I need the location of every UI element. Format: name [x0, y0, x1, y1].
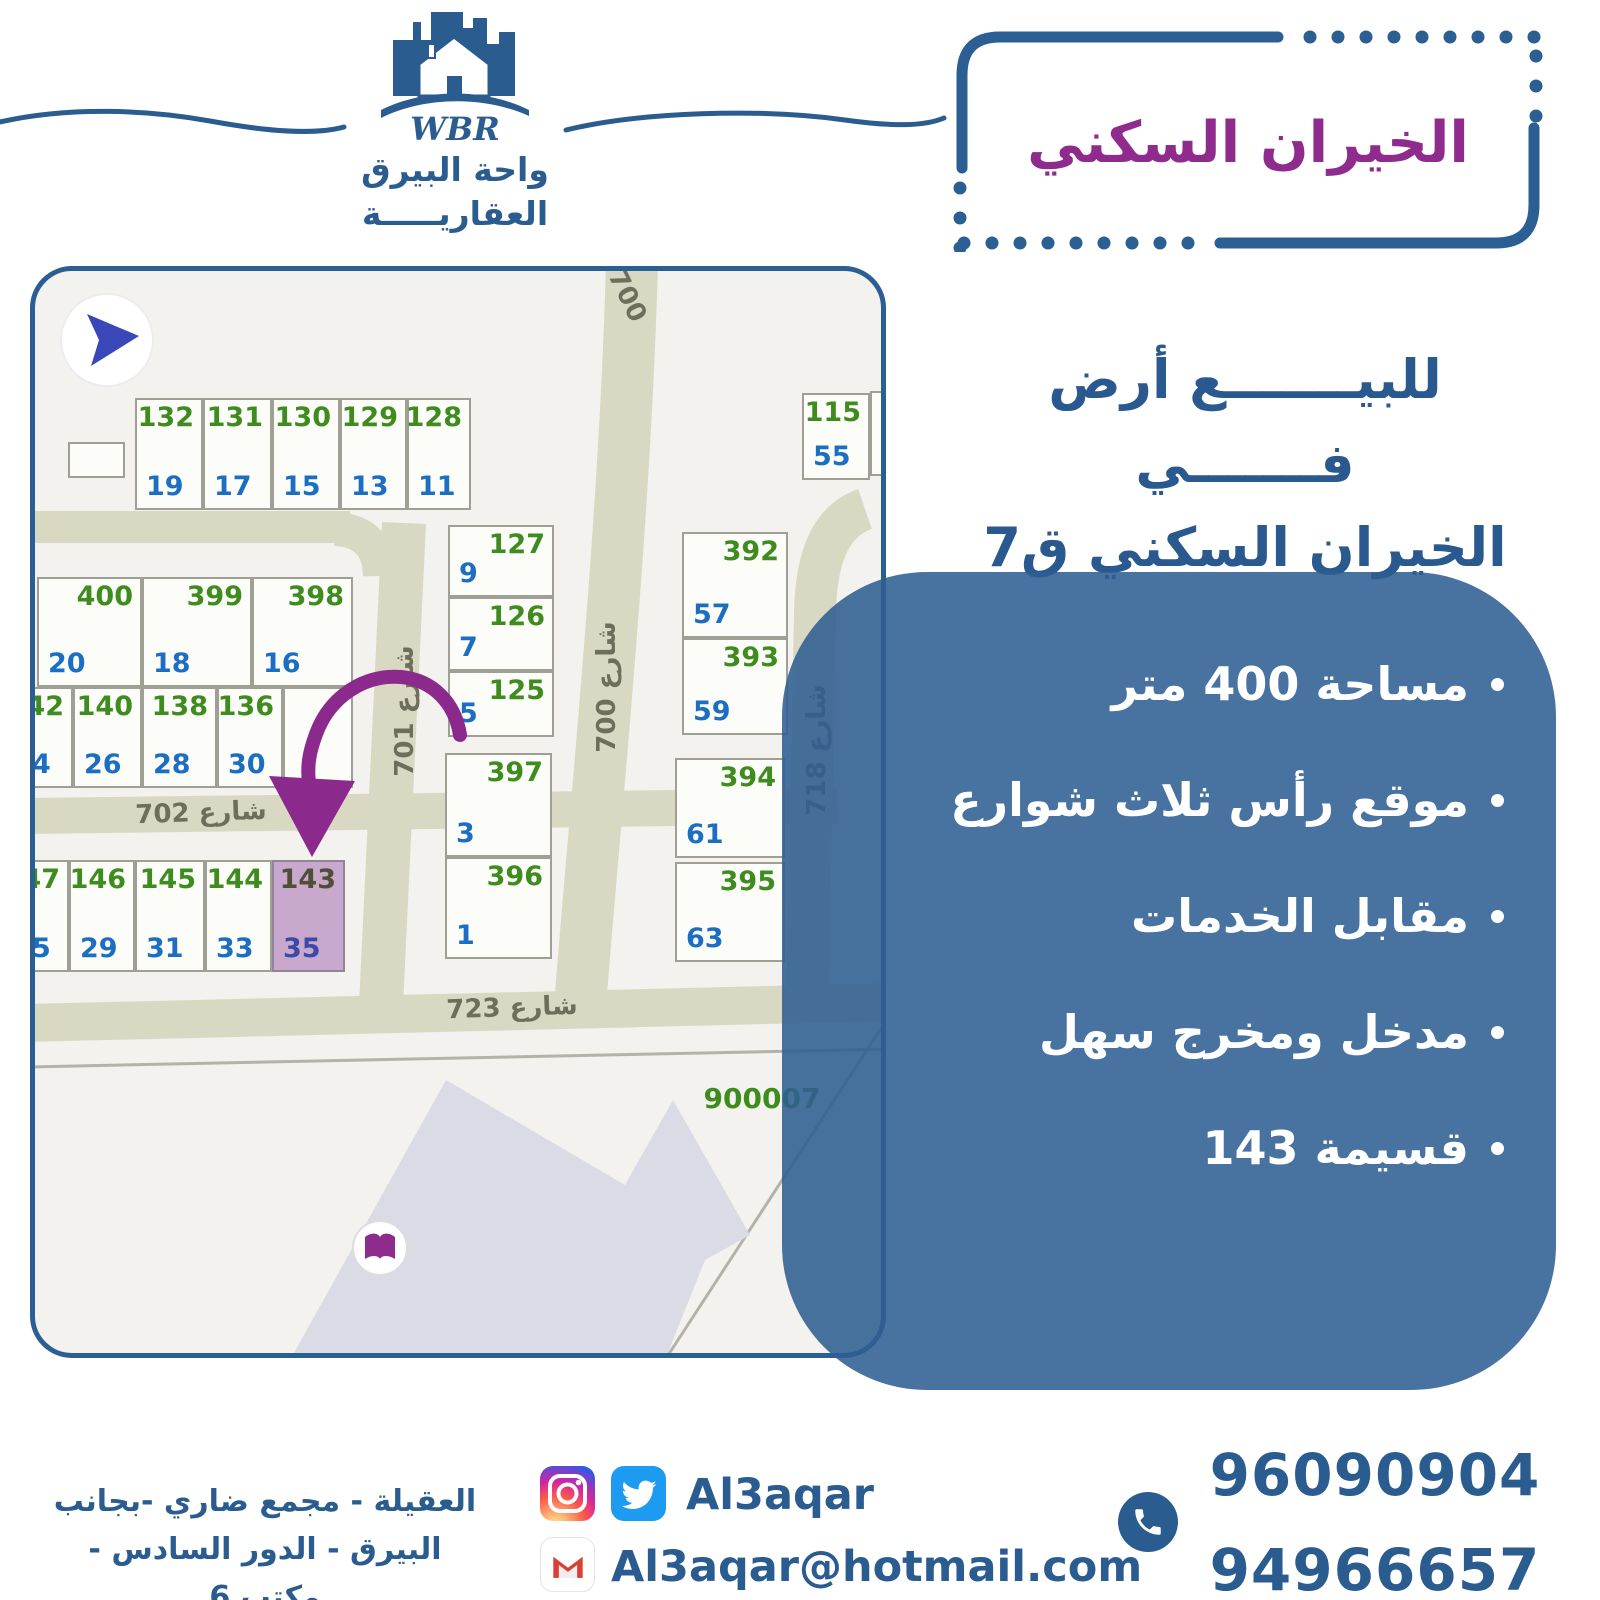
poster: WBR واحة البيرق العقاريـــــة الخيران ال…: [0, 0, 1600, 1600]
plot-number: 393: [723, 642, 779, 673]
map-plot: 13219: [135, 398, 203, 510]
map-plot: 39461: [675, 758, 785, 858]
plot-secondary-number: 33: [216, 933, 254, 964]
gmail-icon[interactable]: [540, 1537, 595, 1592]
plot-secondary-number: 20: [48, 648, 86, 679]
plot-number: 397: [487, 757, 543, 788]
plot-secondary-number: 5: [459, 698, 478, 729]
map-plot: 39257: [682, 532, 788, 638]
feature-bullet: مقابل الخدمات: [822, 890, 1504, 942]
map-plot: [283, 687, 353, 788]
building-footprint: [290, 1080, 750, 1358]
feature-bullet: مساحة 400 متر: [822, 658, 1504, 710]
map-plot: 40020: [37, 577, 142, 687]
feature-text: مقابل الخدمات: [1131, 890, 1469, 942]
map-plot: 13015: [272, 398, 340, 510]
map-plot: 3973: [445, 753, 552, 857]
bullet-dot-icon: [1491, 678, 1504, 691]
plot-secondary-number: 61: [686, 819, 724, 850]
twitter-icon[interactable]: [611, 1466, 666, 1521]
plot-number: 144: [207, 864, 263, 895]
plot-secondary-number: 3: [456, 818, 475, 849]
feature-text: مدخل ومخرج سهل: [1039, 1006, 1469, 1058]
phone-icon: [1118, 1492, 1178, 1552]
social-handle[interactable]: Al3aqar: [686, 1470, 874, 1520]
compass-badge: [59, 292, 155, 388]
map-plot: 14629: [69, 860, 135, 972]
plot-number: 394: [720, 762, 776, 793]
map-plot: 13828: [142, 687, 217, 788]
map-plot: 11555: [802, 393, 870, 480]
book-icon: [365, 1234, 395, 1259]
map-plot: 14433: [205, 860, 272, 972]
plot-number: 400: [77, 581, 133, 612]
feature-bullet: موقع رأس ثلاث شوارع: [822, 774, 1504, 826]
plot-number: 146: [70, 864, 126, 895]
map-plot: 1424: [30, 687, 73, 788]
title-box: الخيران السكني: [948, 28, 1548, 252]
plot-number: 127: [489, 529, 545, 560]
plot-number: 138: [152, 691, 208, 722]
feature-text: موقع رأس ثلاث شوارع: [950, 774, 1469, 826]
plot-secondary-number: 57: [693, 599, 731, 630]
plot-number: 395: [720, 866, 776, 897]
plot-number: 132: [138, 402, 194, 433]
plot-secondary-number: 5: [32, 933, 51, 964]
plot-secondary-number: 18: [153, 648, 191, 679]
map-plot: 1279: [448, 525, 554, 597]
bullet-dot-icon: [1491, 1026, 1504, 1039]
street-name-label: شارع 702: [121, 795, 282, 831]
map-plot: 39359: [682, 638, 788, 735]
plot-number: 392: [723, 536, 779, 567]
map-plot: 12811: [407, 398, 471, 510]
plot-secondary-number: 1: [456, 920, 475, 951]
plot-secondary-number: 59: [693, 696, 731, 727]
map-plot: 39918: [142, 577, 252, 687]
plots-map: 1321913117130151291312811400203991839816…: [30, 266, 886, 1358]
street-name-label: شارع 723: [432, 990, 593, 1026]
plot-secondary-number: 28: [153, 749, 191, 780]
map-plot: 3961: [445, 857, 552, 959]
map-plot: 39563: [675, 862, 785, 962]
feature-bullet: مدخل ومخرج سهل: [822, 1006, 1504, 1058]
address-line2: البيرق - الدور السادس - مكتب 6: [50, 1526, 480, 1600]
plot-secondary-number: 26: [84, 749, 122, 780]
phone-number-2[interactable]: 94966657: [1190, 1523, 1560, 1600]
plot-number: 396: [487, 861, 543, 892]
plot-number: 131: [207, 402, 263, 433]
bullet-dot-icon: [1491, 794, 1504, 807]
plot-secondary-number: 31: [146, 933, 184, 964]
instagram-icon[interactable]: [540, 1466, 595, 1521]
plot-number: 115: [805, 397, 861, 428]
plot-number: 140: [77, 691, 133, 722]
street-name-label: شارع 701: [390, 636, 420, 786]
plot-secondary-number: 11: [418, 471, 456, 502]
feature-bullet: قسيمة 143: [822, 1122, 1504, 1174]
plot-number: 126: [489, 601, 545, 632]
feature-text: مساحة 400 متر: [1111, 658, 1469, 710]
map-plot: 13630: [217, 687, 283, 788]
plot-secondary-number: 55: [813, 441, 851, 472]
plot-number: 47: [30, 864, 60, 895]
plot-secondary-number: 19: [146, 471, 184, 502]
brand-logo-block: WBR واحة البيرق العقاريـــــة: [330, 4, 580, 236]
plot-secondary-number: 30: [228, 749, 266, 780]
features-panel: مساحة 400 مترموقع رأس ثلاث شوارعمقابل ال…: [782, 572, 1556, 1390]
wbr-text: WBR: [410, 110, 500, 144]
map-plot: 1255: [448, 671, 554, 737]
thin-road: [35, 1049, 886, 1067]
plot-secondary-number: 13: [351, 471, 389, 502]
email-address[interactable]: Al3aqar@hotmail.com: [611, 1542, 1142, 1592]
plot-secondary-number: 16: [263, 648, 301, 679]
bullet-dot-icon: [1491, 910, 1504, 923]
plot-secondary-number: 63: [686, 923, 724, 954]
brand-name-line2: العقاريـــــة: [330, 192, 580, 236]
brand-name-line1: واحة البيرق: [330, 148, 580, 192]
plot-secondary-number: 29: [80, 933, 118, 964]
plot-number: 142: [30, 691, 64, 722]
map-plot: [870, 391, 886, 476]
twitter-bird-icon: [619, 1474, 659, 1514]
plot-number: 143: [280, 864, 336, 895]
plot-number: 130: [275, 402, 331, 433]
plot-secondary-number: 17: [214, 471, 252, 502]
map-plot: 14531: [135, 860, 205, 972]
plot-number: 136: [218, 691, 274, 722]
map-plot-highlighted: 14335: [272, 860, 345, 972]
map-plot: 12913: [340, 398, 407, 510]
map-plot: 39816: [252, 577, 353, 687]
phone-number-1[interactable]: 96090904: [1190, 1428, 1560, 1523]
address-line1: العقيلة - مجمع ضاري -بجانب: [50, 1478, 480, 1526]
map-plot: 13117: [203, 398, 272, 510]
plot-secondary-number: 15: [283, 471, 321, 502]
plot-number: 398: [288, 581, 344, 612]
wbr-logo-icon: WBR: [375, 4, 535, 144]
plot-number: 399: [187, 581, 243, 612]
plot-secondary-number: 7: [459, 632, 478, 663]
plot-number: 128: [406, 402, 462, 433]
map-plot: 475: [30, 860, 69, 972]
subtitle-line1: للبيـــــــع أرض فـــــــي: [930, 338, 1560, 506]
map-plot: [68, 442, 125, 478]
bullet-dot-icon: [1491, 1142, 1504, 1155]
street-name-label: شارع 700: [592, 612, 622, 762]
plot-number: 125: [489, 675, 545, 706]
phone-numbers[interactable]: 96090904 94966657: [1190, 1428, 1560, 1600]
plot-number: 145: [140, 864, 196, 895]
plot-secondary-number: 9: [459, 558, 478, 589]
page-title: الخيران السكني: [948, 110, 1548, 176]
plot-secondary-number: 35: [283, 933, 321, 964]
plot-number: 129: [342, 402, 398, 433]
plot-secondary-number: 4: [32, 749, 51, 780]
map-plot: 14026: [73, 687, 142, 788]
subtitle: للبيـــــــع أرض فـــــــي الخيران السكن…: [930, 338, 1560, 590]
feature-text: قسيمة 143: [1203, 1122, 1470, 1174]
address: العقيلة - مجمع ضاري -بجانب البيرق - الدو…: [50, 1478, 480, 1600]
map-plot: 1267: [448, 597, 554, 671]
